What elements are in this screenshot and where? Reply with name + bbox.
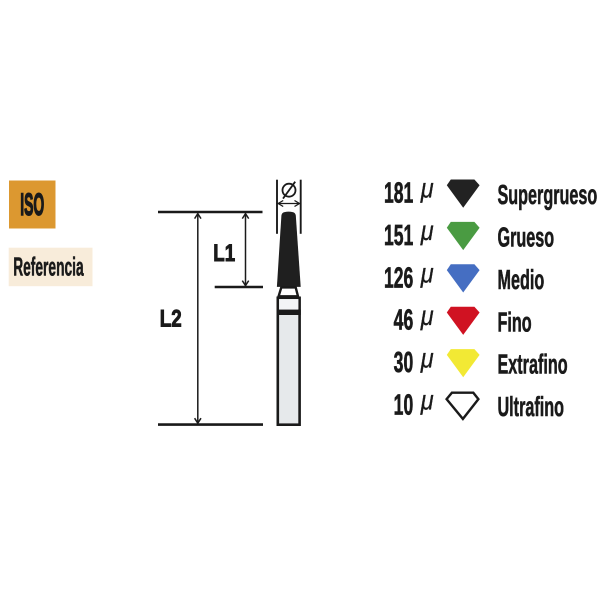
svg-text:ISO: ISO — [20, 188, 44, 223]
svg-text:Ultrafino: Ultrafino — [498, 390, 565, 422]
svg-text:L1: L1 — [213, 240, 235, 267]
svg-text:10: 10 — [394, 389, 414, 422]
svg-text:181: 181 — [384, 177, 413, 210]
svg-text:μ: μ — [420, 216, 434, 246]
svg-text:126: 126 — [384, 262, 413, 295]
svg-text:151: 151 — [384, 219, 413, 252]
svg-text:Extrafino: Extrafino — [498, 348, 568, 380]
svg-text:Medio: Medio — [498, 263, 545, 295]
svg-text:μ: μ — [420, 259, 434, 289]
svg-text:μ: μ — [420, 386, 434, 416]
svg-text:46: 46 — [394, 304, 414, 337]
svg-text:30: 30 — [394, 347, 414, 380]
svg-text:L2: L2 — [160, 305, 182, 332]
svg-text:μ: μ — [420, 174, 434, 204]
svg-text:μ: μ — [420, 301, 434, 331]
svg-text:Fino: Fino — [498, 306, 532, 338]
svg-text:μ: μ — [420, 343, 434, 373]
svg-text:Supergrueso: Supergrueso — [498, 178, 598, 210]
svg-text:Referencia: Referencia — [13, 253, 84, 282]
svg-text:Grueso: Grueso — [498, 221, 555, 253]
